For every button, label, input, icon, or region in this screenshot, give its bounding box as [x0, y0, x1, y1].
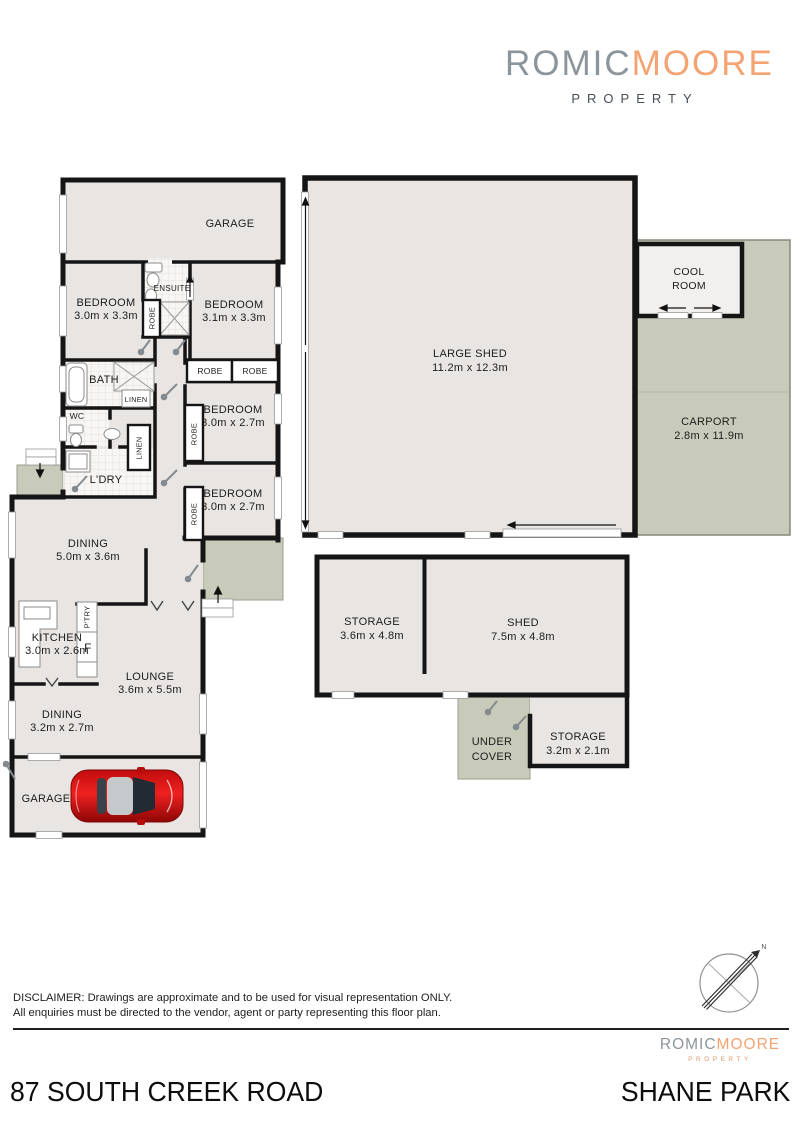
brand-logo-small: ROMICMOORE PROPERTY	[640, 1036, 800, 1063]
room-label-dining2: DINING	[42, 709, 82, 721]
mirror	[137, 767, 145, 773]
room-label-garage-bottom: GARAGE	[22, 793, 71, 805]
sink-icon	[24, 607, 50, 619]
floor-plan: N GARAGE BEDROOM 3.0m x 3.3m ENSUITE ROB…	[0, 0, 800, 1138]
basin-icon	[104, 429, 120, 440]
bathtub-icon	[66, 363, 87, 406]
brand-logo: ROMICMOORE PROPERTY	[505, 44, 765, 106]
window	[9, 512, 16, 558]
room-label-robe-right: ROBE	[242, 366, 267, 376]
cool-room-door	[658, 313, 688, 319]
room-label-garage-top: GARAGE	[206, 218, 255, 230]
window	[9, 701, 16, 739]
garage-door-panel	[60, 195, 67, 253]
floorplan-page: N GARAGE BEDROOM 3.0m x 3.3m ENSUITE ROB…	[0, 0, 800, 1138]
window	[465, 532, 490, 539]
room-label-shed2: SHED	[507, 617, 539, 629]
compass-icon: N	[700, 944, 767, 1012]
window	[60, 366, 67, 392]
room-label-bedroom3: BEDROOM	[204, 404, 263, 416]
laundry-tub-icon	[66, 451, 90, 472]
room-dims-lounge: 3.6m x 5.5m	[118, 684, 182, 696]
window	[332, 692, 354, 699]
room-label-storage2: STORAGE	[550, 731, 606, 743]
room-label-large-shed: LARGE SHED	[433, 348, 507, 360]
car-icon	[71, 767, 183, 825]
room-label-bedroom2: BEDROOM	[205, 299, 264, 311]
window	[9, 627, 16, 657]
toilet-icon	[71, 434, 82, 447]
rear-deck	[203, 538, 283, 600]
address-street: 87 SOUTH CREEK ROAD	[10, 1076, 323, 1108]
room-dims-kitchen: 3.0m x 2.6m	[25, 645, 89, 657]
window	[318, 532, 343, 539]
room-label-carport: CARPORT	[681, 416, 737, 428]
toilet-icon	[69, 425, 83, 433]
room-dims-bedroom1: 3.0m x 3.3m	[74, 310, 138, 322]
room-label-cool-room-2: ROOM	[672, 280, 706, 292]
disclaimer-line2: All enquiries must be directed to the ve…	[13, 1006, 452, 1021]
room-label-laundry: L'DRY	[90, 474, 123, 486]
room-dims-large-shed: 11.2m x 12.3m	[432, 362, 508, 374]
room-dims-shed2: 7.5m x 4.8m	[491, 631, 555, 643]
brand-name-small: ROMICMOORE	[640, 1036, 800, 1054]
window	[275, 287, 282, 344]
room-label-linen-hall: LINEN	[135, 437, 144, 460]
shower-icon	[160, 302, 189, 335]
room-label-bedroom1: BEDROOM	[77, 297, 136, 309]
room-label-cool-room-1: COOL	[674, 266, 705, 278]
window	[443, 692, 468, 699]
cupboard-cell	[77, 662, 97, 677]
footer-divider	[13, 1028, 789, 1030]
brand-name-romic-small: ROMIC	[660, 1036, 717, 1053]
room-label-under-cover-1: UNDER	[472, 736, 513, 748]
garage-door-panel	[200, 762, 207, 828]
address-suburb: SHANE PARK	[620, 1076, 790, 1108]
cool-room-door	[692, 313, 722, 319]
brand-name-romic: ROMIC	[505, 44, 632, 83]
brand-name: ROMICMOORE	[505, 44, 765, 84]
room-dims-storage2: 3.2m x 2.1m	[546, 745, 610, 757]
room-label-robe3: ROBE	[190, 423, 199, 445]
room-dims-bedroom3: 3.0m x 2.7m	[201, 417, 265, 429]
room-label-kitchen: KITCHEN	[32, 632, 82, 644]
window	[60, 286, 67, 336]
window	[275, 394, 282, 424]
brand-tagline: PROPERTY	[505, 91, 765, 106]
room-label-linen-bath: LINEN	[125, 395, 148, 404]
room-label-storage1: STORAGE	[344, 616, 400, 628]
room-label-bath: BATH	[89, 374, 119, 386]
room-label-wc: WC	[70, 411, 85, 421]
shed-sliding-door	[503, 529, 621, 537]
room-label-dining1: DINING	[68, 538, 108, 550]
room-dims-carport: 2.8m x 11.9m	[674, 430, 743, 442]
fridge-label: F	[84, 641, 92, 655]
room-dims-dining2: 3.2m x 2.7m	[30, 722, 94, 734]
window	[28, 754, 60, 761]
room-label-pantry: P'TRY	[83, 606, 92, 629]
room-label-under-cover-2: COVER	[472, 751, 513, 763]
window	[60, 417, 67, 441]
brand-name-moore-small: MOORE	[717, 1036, 781, 1053]
room-label-robe-ensuite: ROBE	[148, 307, 157, 329]
compass-north-label: N	[761, 944, 766, 951]
disclaimer: DISCLAIMER: Drawings are approximate and…	[13, 991, 452, 1021]
room-dims-dining1: 5.0m x 3.6m	[56, 551, 120, 563]
brand-tagline-small: PROPERTY	[640, 1056, 800, 1063]
brand-name-moore: MOORE	[632, 44, 774, 83]
room-label-robe-left: ROBE	[197, 366, 222, 376]
room-dims-bedroom4: 3.0m x 2.7m	[201, 501, 265, 513]
room-dims-bedroom2: 3.1m x 3.3m	[202, 312, 266, 324]
room-label-robe4: ROBE	[190, 503, 199, 525]
window	[36, 832, 62, 839]
room-label-bedroom4: BEDROOM	[204, 488, 263, 500]
shower-icon	[114, 362, 154, 391]
window	[200, 694, 207, 734]
window	[275, 477, 282, 519]
toilet-icon	[145, 263, 162, 272]
room-label-lounge: LOUNGE	[126, 671, 174, 683]
room-label-ensuite: ENSUITE	[154, 284, 191, 293]
disclaimer-line1: DISCLAIMER: Drawings are approximate and…	[13, 991, 452, 1006]
mirror	[137, 819, 145, 825]
room-dims-storage1: 3.6m x 4.8m	[340, 630, 404, 642]
